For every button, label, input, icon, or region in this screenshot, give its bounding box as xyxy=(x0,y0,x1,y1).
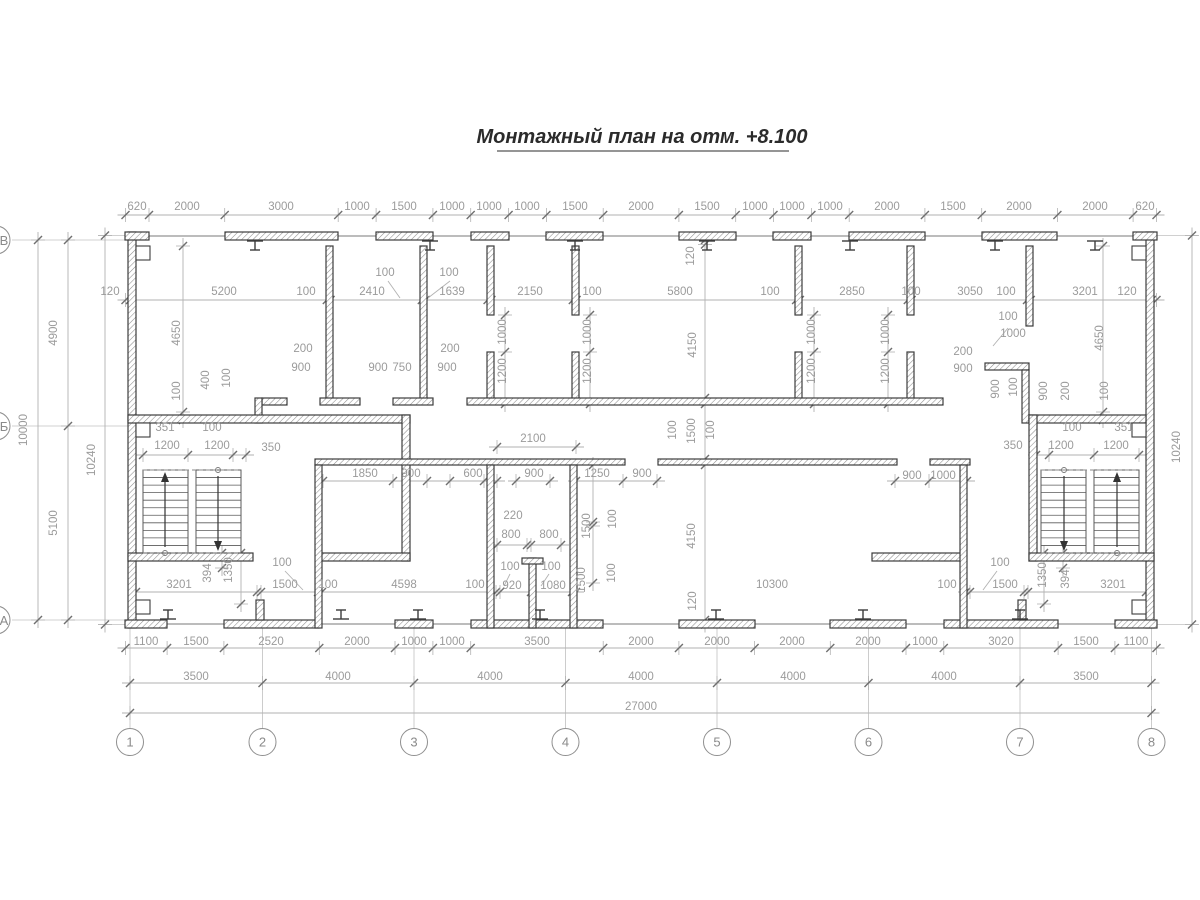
wall-notch xyxy=(136,246,150,260)
wall xyxy=(1146,232,1154,628)
dim-label: 900 xyxy=(437,362,456,374)
wall xyxy=(1029,553,1154,561)
dim-label: 100 xyxy=(990,557,1009,569)
wall-notch xyxy=(136,600,150,614)
dim-label: 100 xyxy=(1008,377,1020,396)
dim-label: 1000 xyxy=(779,201,805,213)
wall xyxy=(487,352,494,404)
dim-label: 1000 xyxy=(912,636,938,648)
wall xyxy=(830,620,906,628)
dim-label: 1639 xyxy=(439,286,465,298)
dim-label: 1000 xyxy=(439,201,465,213)
dim-label: 200 xyxy=(1060,381,1072,400)
dim-label: 351 xyxy=(155,422,174,434)
dim-label: 4000 xyxy=(931,671,957,683)
dim-label: 2100 xyxy=(520,433,546,445)
dim-label: 2000 xyxy=(779,636,805,648)
dim-label: 100 xyxy=(296,286,315,298)
dim-label: 1200 xyxy=(1048,440,1074,452)
dim-label: 100 xyxy=(606,563,618,582)
dim-label: 4900 xyxy=(48,320,60,346)
wall xyxy=(872,553,964,561)
wall-notch xyxy=(1132,246,1146,260)
drawing-title: Монтажный план на отм. +8.100 xyxy=(476,126,807,148)
dim-label: 100 xyxy=(996,286,1015,298)
dim-label: 1500 xyxy=(272,579,298,591)
wall xyxy=(570,465,577,628)
dim-label: 120 xyxy=(100,286,119,298)
dim-label: 120 xyxy=(1117,286,1136,298)
wall xyxy=(224,620,319,628)
wall xyxy=(982,232,1057,240)
dim-label: 900 xyxy=(953,363,972,375)
dim-label: 2000 xyxy=(344,636,370,648)
dim-label: 1000 xyxy=(439,636,465,648)
axis-bubble-label: А xyxy=(0,613,9,628)
wall xyxy=(658,459,897,465)
wall xyxy=(320,398,360,405)
dim-label: 100 xyxy=(1062,422,1081,434)
dim-label: 1350 xyxy=(1037,562,1049,588)
dim-label: 920 xyxy=(502,580,521,592)
dim-label: 1500 xyxy=(686,418,698,444)
dim-label: 2520 xyxy=(258,636,284,648)
dim-label: 100 xyxy=(272,557,291,569)
dim-label: 3500 xyxy=(1073,671,1099,683)
leader-line xyxy=(388,281,400,298)
dim-label: 400 xyxy=(200,370,212,389)
dim-label: 1500 xyxy=(940,201,966,213)
dim-label: 100 xyxy=(465,579,484,591)
wall xyxy=(795,246,802,315)
dim-label: 1000 xyxy=(742,201,768,213)
dim-label: 2410 xyxy=(359,286,385,298)
wall xyxy=(1115,620,1157,628)
dim-label: 1500 xyxy=(581,513,593,539)
dim-label: 620 xyxy=(1135,201,1154,213)
wall xyxy=(487,465,494,628)
wall xyxy=(679,232,736,240)
dim-label: 3201 xyxy=(1072,286,1098,298)
wall xyxy=(930,459,970,465)
stair-up-arrowhead xyxy=(1113,472,1121,482)
dim-label: 2000 xyxy=(704,636,730,648)
dim-label: 1000 xyxy=(880,319,892,345)
dim-label: 100 xyxy=(667,420,679,439)
dim-label: 2000 xyxy=(1006,201,1032,213)
dim-label: 900 xyxy=(632,468,651,480)
dim-label: 2000 xyxy=(855,636,881,648)
dim-label: 351 xyxy=(1114,422,1133,434)
dim-label: 2000 xyxy=(628,636,654,648)
wall xyxy=(795,352,802,404)
dim-label: 1200 xyxy=(154,440,180,452)
dim-label: 120 xyxy=(687,591,699,610)
dim-label: 100 xyxy=(375,267,394,279)
wall xyxy=(128,232,136,628)
axis-bubble-label: 3 xyxy=(410,735,417,750)
dim-label: 4150 xyxy=(686,523,698,549)
axis-bubble-label: Б xyxy=(0,419,8,434)
axis-bubble-label: 4 xyxy=(562,735,569,750)
dim-label: 4000 xyxy=(477,671,503,683)
dim-label: 100 xyxy=(171,381,183,400)
wall xyxy=(679,620,755,628)
axis-bubble-label: 2 xyxy=(259,735,266,750)
axis-bubble-label: В xyxy=(0,233,8,248)
wall-notch xyxy=(1132,423,1146,437)
wall xyxy=(960,465,967,628)
dim-label: 27000 xyxy=(625,701,657,713)
dim-label: 1200 xyxy=(880,358,892,384)
dim-label: 100 xyxy=(705,420,717,439)
wall xyxy=(315,465,322,628)
dim-label: 900 xyxy=(401,468,420,480)
dim-label: 10240 xyxy=(1171,431,1183,463)
dim-label: 800 xyxy=(501,529,520,541)
dim-label: 10240 xyxy=(86,444,98,476)
dim-label: 100 xyxy=(760,286,779,298)
wall xyxy=(467,398,943,405)
dim-label: 3201 xyxy=(1100,579,1126,591)
dim-label: 1000 xyxy=(582,319,594,345)
wall xyxy=(471,232,509,240)
dim-label: 1200 xyxy=(582,358,594,384)
wall xyxy=(1026,246,1033,326)
wall xyxy=(395,620,433,628)
dim-label: 120 xyxy=(685,246,697,265)
axis-bubble-label: 8 xyxy=(1148,735,1155,750)
dim-label: 1500 xyxy=(694,201,720,213)
dim-label: 1500 xyxy=(183,636,209,648)
wall xyxy=(572,246,579,315)
dim-label: 620 xyxy=(127,201,146,213)
dim-label: 1500 xyxy=(391,201,417,213)
dim-label: 750 xyxy=(392,362,411,374)
wall xyxy=(849,232,925,240)
dim-label: 1000 xyxy=(344,201,370,213)
dim-label: 1200 xyxy=(204,440,230,452)
wall xyxy=(225,232,338,240)
dim-label: 394 xyxy=(202,563,214,583)
dim-label: 100 xyxy=(221,368,233,387)
stair-down-arrowhead xyxy=(214,541,222,551)
dim-label: 1500 xyxy=(562,201,588,213)
wall xyxy=(1133,232,1157,240)
dim-label: 2000 xyxy=(1082,201,1108,213)
dim-label: 4650 xyxy=(1094,325,1106,351)
dim-label: 1000 xyxy=(930,470,956,482)
dim-label: 1200 xyxy=(497,358,509,384)
dim-label: 100 xyxy=(582,286,601,298)
wall xyxy=(256,600,264,620)
axis-bubble-label: 7 xyxy=(1016,735,1023,750)
dim-label: 4150 xyxy=(687,332,699,358)
dim-label: 1500 xyxy=(1073,636,1099,648)
wall xyxy=(420,246,427,404)
dim-label: 1000 xyxy=(1000,328,1026,340)
dim-label: 100 xyxy=(318,579,337,591)
dim-label: 220 xyxy=(503,510,522,522)
dim-label: 900 xyxy=(368,362,387,374)
dim-label: 2150 xyxy=(517,286,543,298)
dim-label: 10000 xyxy=(18,414,30,446)
wall xyxy=(985,363,1029,370)
wall xyxy=(907,352,914,404)
dim-label: 900 xyxy=(990,379,1002,398)
axis-bubble-label: 5 xyxy=(713,735,720,750)
wall xyxy=(529,558,536,628)
dim-label: 100 xyxy=(439,267,458,279)
dim-label: 900 xyxy=(1038,381,1050,400)
dim-label: 100 xyxy=(500,561,519,573)
wall xyxy=(125,232,149,240)
dim-label: 1000 xyxy=(476,201,502,213)
floor-plan-canvas: 6202000300010001500100010001000150020001… xyxy=(0,0,1200,900)
wall xyxy=(572,352,579,404)
dim-label: 4000 xyxy=(780,671,806,683)
dim-label: 4000 xyxy=(325,671,351,683)
wall xyxy=(262,398,287,405)
dim-label: 1000 xyxy=(497,319,509,345)
wall xyxy=(318,553,410,561)
dim-label: 4650 xyxy=(171,320,183,346)
wall-notch xyxy=(1132,600,1146,614)
dim-label: 100 xyxy=(607,509,619,528)
wall xyxy=(125,620,167,628)
dim-label: 1500 xyxy=(576,567,588,593)
dim-label: 350 xyxy=(261,442,280,454)
dim-label: 600 xyxy=(463,468,482,480)
dim-label: 200 xyxy=(293,343,312,355)
wall xyxy=(393,398,433,405)
wall xyxy=(315,459,625,465)
dim-label: 3000 xyxy=(268,201,294,213)
wall xyxy=(487,246,494,315)
dim-label: 3201 xyxy=(166,579,192,591)
dim-label: 1350 xyxy=(223,557,235,583)
dim-label: 900 xyxy=(902,470,921,482)
dim-label: 1000 xyxy=(806,319,818,345)
dim-label: 100 xyxy=(937,579,956,591)
dim-label: 394 xyxy=(1060,569,1072,589)
wall xyxy=(1022,370,1029,423)
dim-label: 800 xyxy=(539,529,558,541)
dim-label: 1500 xyxy=(992,579,1018,591)
wall-notch xyxy=(136,423,150,437)
wall xyxy=(1029,415,1037,561)
dim-label: 1000 xyxy=(514,201,540,213)
dim-label: 1000 xyxy=(401,636,427,648)
dim-label: 2850 xyxy=(839,286,865,298)
wall xyxy=(326,246,333,404)
dim-label: 1100 xyxy=(134,636,159,648)
dim-label: 3050 xyxy=(957,286,983,298)
dim-label: 2000 xyxy=(628,201,654,213)
dim-label: 4598 xyxy=(391,579,417,591)
dim-label: 3500 xyxy=(524,636,550,648)
dim-label: 4000 xyxy=(628,671,654,683)
dim-label: 5100 xyxy=(48,510,60,536)
dim-label: 200 xyxy=(440,343,459,355)
wall xyxy=(773,232,811,240)
dim-label: 5800 xyxy=(667,286,693,298)
stair-up-arrowhead xyxy=(161,472,169,482)
dim-label: 5200 xyxy=(211,286,237,298)
axis-bubble-label: 1 xyxy=(126,735,133,750)
dim-label: 200 xyxy=(953,346,972,358)
dim-label: 10300 xyxy=(756,579,788,591)
dim-label: 100 xyxy=(202,422,221,434)
wall xyxy=(376,232,433,240)
wall xyxy=(907,246,914,315)
dim-label: 900 xyxy=(524,468,543,480)
dim-label: 900 xyxy=(291,362,310,374)
dim-label: 1080 xyxy=(540,580,566,592)
dim-label: 350 xyxy=(1003,440,1022,452)
wall xyxy=(522,558,543,564)
dim-label: 1000 xyxy=(817,201,843,213)
dim-label: 100 xyxy=(541,561,560,573)
dim-label: 1200 xyxy=(806,358,818,384)
wall xyxy=(402,415,410,561)
dim-label: 2000 xyxy=(874,201,900,213)
dim-label: 3500 xyxy=(183,671,209,683)
dim-label: 1100 xyxy=(1124,636,1149,648)
dim-label: 2000 xyxy=(174,201,200,213)
wall xyxy=(546,232,603,240)
drawing-sheet: 6202000300010001500100010001000150020001… xyxy=(0,0,1200,900)
dim-label: 100 xyxy=(998,311,1017,323)
dim-label: 1850 xyxy=(352,468,378,480)
dim-label: 1200 xyxy=(1103,440,1129,452)
axis-bubble-label: 6 xyxy=(865,735,872,750)
dim-label: 1250 xyxy=(584,468,610,480)
dim-label: 3020 xyxy=(988,636,1014,648)
dim-label: 100 xyxy=(901,286,920,298)
dim-label: 100 xyxy=(1099,381,1111,400)
